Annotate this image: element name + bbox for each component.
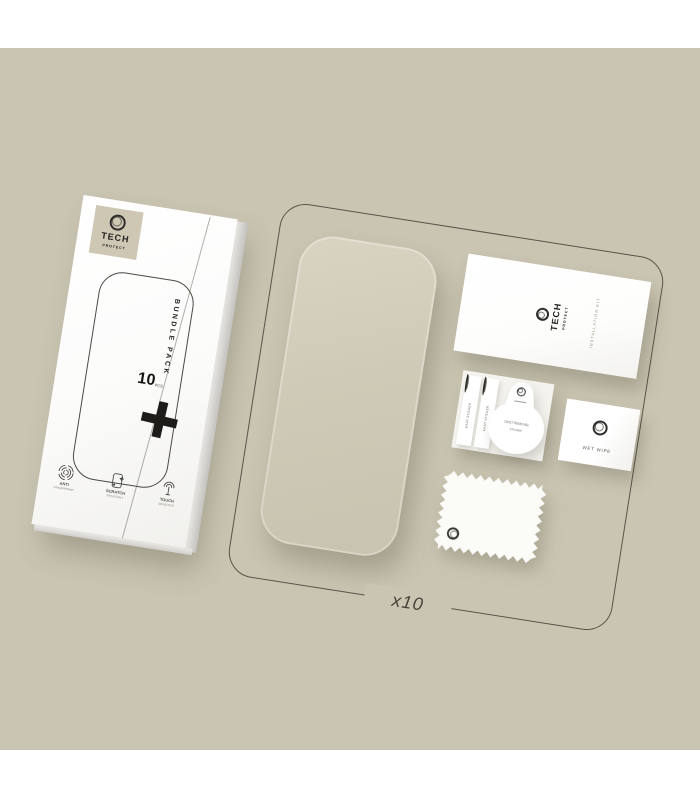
instruction-leaflet: TECH PROTECT INSTALLATION KIT <box>453 254 651 379</box>
dust-sticker-label-line2: STICKER <box>504 428 527 434</box>
feature-scratch-resistant: SCRATCH RESISTANT <box>91 468 141 506</box>
leaflet-brand-logo: TECH PROTECT <box>532 288 574 345</box>
feature-touch-sensitive: TOUCH SENSITIVE <box>142 476 192 514</box>
wet-wipe-label-wrap: WET WIPE <box>559 442 633 462</box>
wet-wipe-packet: WET WIPE <box>558 399 641 472</box>
touch-icon <box>158 479 179 500</box>
box-brand-logo: TECH PROTECT <box>89 205 144 260</box>
tempered-glass-protector <box>256 232 441 561</box>
product-photo: TECH PROTECT BUNDLE PACK 10PCS <box>0 0 700 800</box>
kit-quantity-label: x10 <box>390 589 425 615</box>
microfiber-cloth <box>432 469 547 564</box>
screen-sparkle-icon <box>107 470 128 491</box>
leaflet-side-text: INSTALLATION KIT <box>590 297 602 348</box>
brand-circle-icon <box>592 419 609 436</box>
sticker-sheet: EASY STICKER EASY STICKER DUST REMOVAL S… <box>451 370 554 461</box>
brand-name-bottom: PROTECT <box>102 242 126 250</box>
fingerprint-icon <box>56 462 77 483</box>
plus-cross-icon <box>138 398 181 441</box>
wet-wipe-label: WET WIPE <box>576 445 617 456</box>
box-quantity-unit: PCS <box>154 383 163 389</box>
brand-name-top: TECH <box>101 230 131 244</box>
brand-name-top: TECH <box>548 302 562 332</box>
brand-circle-icon <box>464 374 469 393</box>
dust-removal-sticker: DUST REMOVAL STICKER <box>483 378 551 458</box>
brand-circle-icon <box>482 377 487 396</box>
cloth-zigzag-shape <box>432 469 547 564</box>
brand-circle-icon <box>109 213 127 231</box>
kit-contents-outline: TECH PROTECT INSTALLATION KIT EASY STICK… <box>225 200 667 633</box>
brand-name-bottom: PROTECT <box>561 306 569 330</box>
brand-circle-icon <box>535 307 550 322</box>
feature-anti-fingerprint: ANTI FINGERPRINT <box>40 460 90 498</box>
easy-sticker-label: EASY STICKER <box>464 402 471 428</box>
